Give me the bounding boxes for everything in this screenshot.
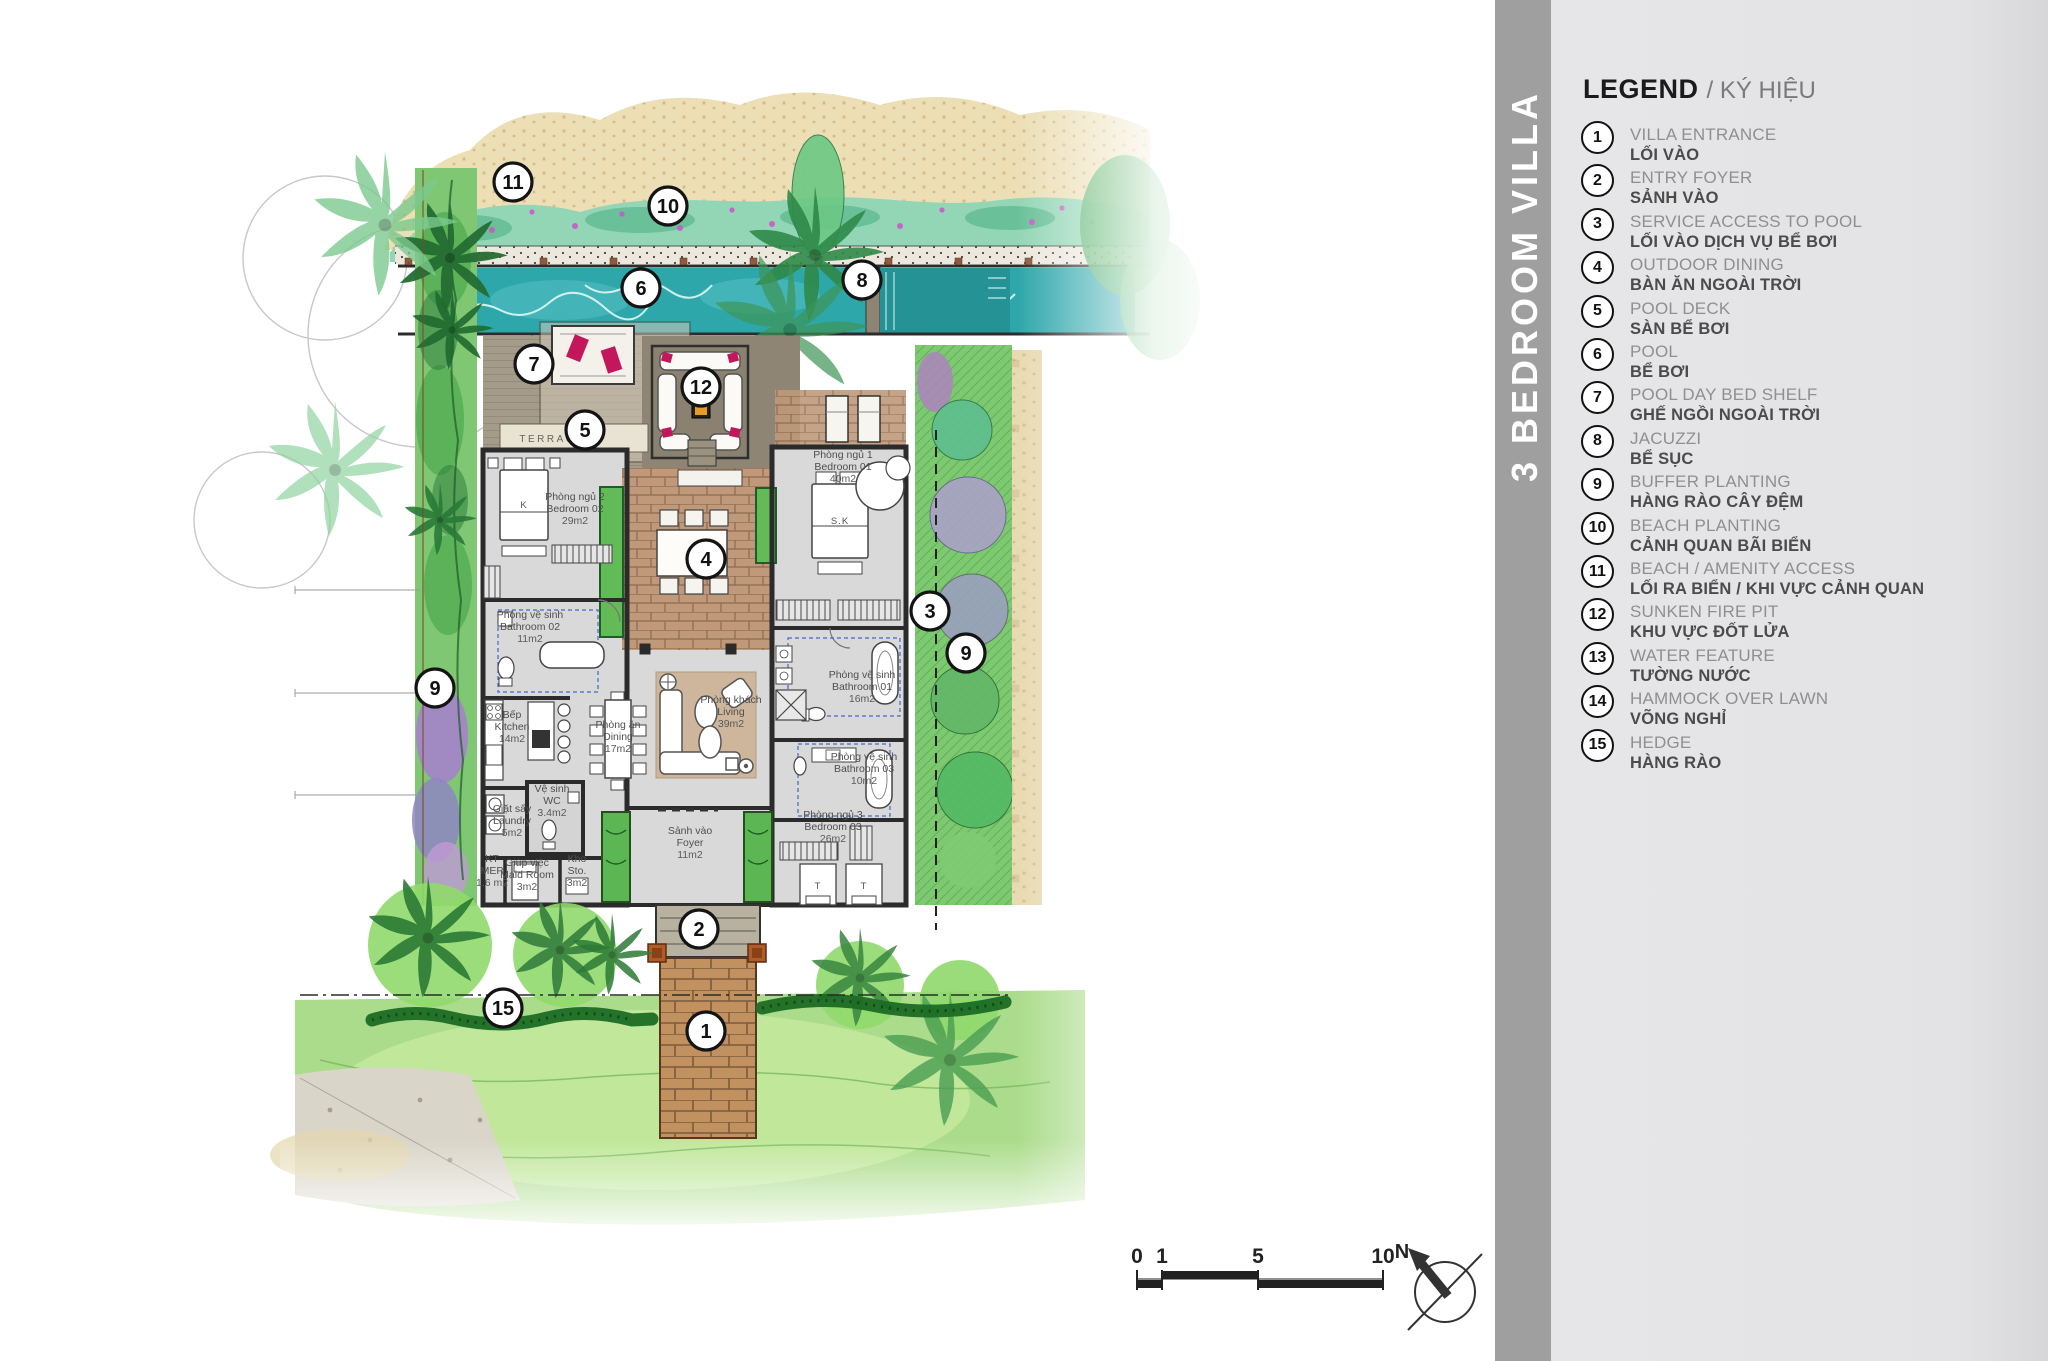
bed-label: T	[861, 881, 868, 892]
legend-item-number: 13	[1581, 642, 1614, 675]
legend-item-vi: VÕNG NGHỈ	[1630, 709, 2020, 730]
plan-marker-9: 9	[416, 669, 454, 707]
legend-item-11: 11BEACH / AMENITY ACCESSLỐI RA BIỂN / KH…	[1581, 558, 2020, 600]
legend-item-number: 5	[1581, 295, 1614, 328]
legend-item-vi: TƯỜNG NƯỚC	[1630, 666, 2020, 687]
svg-text:9: 9	[960, 643, 971, 665]
legend-item-12: 12SUNKEN FIRE PITKHU VỰC ĐỐT LỬA	[1581, 601, 2020, 643]
legend-item-number: 7	[1581, 381, 1614, 414]
legend-items: 1VILLA ENTRANCELỐI VÀO2ENTRY FOYERSẢNH V…	[1551, 0, 2048, 1361]
legend-item-15: 15HEDGEHÀNG RÀO	[1581, 732, 2020, 774]
svg-text:9: 9	[429, 678, 440, 700]
svg-text:3: 3	[924, 601, 935, 623]
plan-marker-10: 10	[649, 187, 687, 225]
plan-marker-2: 2	[680, 910, 718, 948]
legend-item-en: POOL	[1630, 341, 2020, 362]
legend-item-3: 3SERVICE ACCESS TO POOLLỐI VÀO DỊCH VỤ B…	[1581, 211, 2020, 253]
room-label: KhoSto.3m2	[567, 853, 588, 889]
legend-item-13: 13WATER FEATURETƯỜNG NƯỚC	[1581, 645, 2020, 687]
legend-item-en: POOL DAY BED SHELF	[1630, 384, 2020, 405]
legend-item-number: 3	[1581, 208, 1614, 241]
legend-item-vi: KHU VỰC ĐỐT LỬA	[1630, 622, 2020, 643]
legend-item-number: 4	[1581, 251, 1614, 284]
legend-item-en: JACUZZI	[1630, 428, 2020, 449]
svg-text:10: 10	[657, 196, 679, 218]
legend-item-vi: LỐI VÀO	[1630, 145, 2020, 166]
plan-marker-1: 1	[687, 1012, 725, 1050]
plan-marker-11: 11	[494, 163, 532, 201]
svg-text:5: 5	[579, 420, 590, 442]
legend-item-number: 6	[1581, 338, 1614, 371]
legend-item-vi: LỐI RA BIỂN / KHI VỰC CẢNH QUAN	[1630, 579, 2020, 600]
legend-item-vi: BÀN ĂN NGOÀI TRỜI	[1630, 275, 2020, 296]
legend-item-number: 1	[1581, 121, 1614, 154]
plan-marker-5: 5	[566, 411, 604, 449]
legend-item-vi: GHẾ NGỒI NGOÀI TRỜI	[1630, 405, 2020, 426]
legend-item-en: BEACH / AMENITY ACCESS	[1630, 558, 2020, 579]
legend-item-en: BEACH PLANTING	[1630, 515, 2020, 536]
legend-item-2: 2ENTRY FOYERSẢNH VÀO	[1581, 167, 2020, 209]
svg-text:2: 2	[693, 919, 704, 941]
site-plan-drawing: TERRACE	[0, 0, 1495, 1361]
legend-item-en: WATER FEATURE	[1630, 645, 2020, 666]
legend-panel: LEGEND/ KÝ HIỆU 1VILLA ENTRANCELỐI VÀO2E…	[1551, 0, 2048, 1361]
plan-marker-6: 6	[622, 269, 660, 307]
legend-item-en: HAMMOCK OVER LAWN	[1630, 688, 2020, 709]
legend-item-en: ENTRY FOYER	[1630, 167, 2020, 188]
legend-item-number: 12	[1581, 598, 1614, 631]
legend-item-6: 6POOLBỂ BƠI	[1581, 341, 2020, 383]
svg-text:1: 1	[700, 1021, 711, 1043]
legend-item-vi: HÀNG RÀO CÂY ĐỆM	[1630, 492, 2020, 513]
legend-item-number: 2	[1581, 164, 1614, 197]
plan-marker-15: 15	[484, 989, 522, 1027]
legend-item-en: SERVICE ACCESS TO POOL	[1630, 211, 2020, 232]
legend-item-vi: CẢNH QUAN BÃI BIỂN	[1630, 536, 2020, 557]
legend-item-number: 10	[1581, 512, 1614, 545]
svg-text:7: 7	[528, 354, 539, 376]
svg-text:12: 12	[690, 377, 712, 399]
palm-tree	[269, 401, 404, 536]
legend-item-vi: SẢNH VÀO	[1630, 188, 2020, 209]
bed-label: T	[815, 881, 822, 892]
plan-marker-9: 9	[947, 634, 985, 672]
jacuzzi	[880, 268, 1010, 334]
villa-type-banner: 3 BEDROOM VILLA	[1495, 0, 1551, 1361]
right-margin	[1255, 0, 1495, 1361]
scale-label-0: 0	[1131, 1245, 1143, 1268]
drawing-sheet: TERRACE	[0, 0, 2048, 1361]
legend-item-en: SUNKEN FIRE PIT	[1630, 601, 2020, 622]
svg-text:8: 8	[856, 270, 867, 292]
legend-item-7: 7POOL DAY BED SHELFGHẾ NGỒI NGOÀI TRỜI	[1581, 384, 2020, 426]
north-label: N	[1395, 1241, 1409, 1263]
dimension-lines	[295, 586, 420, 799]
legend-item-vi: LỐI VÀO DỊCH VỤ BỂ BƠI	[1630, 232, 2020, 253]
legend-item-10: 10BEACH PLANTINGCẢNH QUAN BÃI BIỂN	[1581, 515, 2020, 557]
legend-item-vi: SÀN BỂ BƠI	[1630, 319, 2020, 340]
legend-item-number: 11	[1581, 555, 1614, 588]
scale-label-1: 1	[1156, 1245, 1168, 1268]
legend-item-number: 8	[1581, 425, 1614, 458]
legend-item-number: 9	[1581, 468, 1614, 501]
legend-item-14: 14HAMMOCK OVER LAWNVÕNG NGHỈ	[1581, 688, 2020, 730]
svg-text:6: 6	[635, 278, 646, 300]
bottom-fade	[280, 1140, 1180, 1280]
plan-marker-4: 4	[687, 540, 725, 578]
legend-item-en: OUTDOOR DINING	[1630, 254, 2020, 275]
pool-day-bed	[552, 326, 634, 384]
legend-item-number: 15	[1581, 729, 1614, 762]
svg-text:15: 15	[492, 998, 514, 1020]
legend-item-vi: HÀNG RÀO	[1630, 753, 2020, 774]
plan-marker-12: 12	[682, 368, 720, 406]
legend-item-en: BUFFER PLANTING	[1630, 471, 2020, 492]
legend-item-vi: BỂ SỤC	[1630, 449, 2020, 470]
scale-label-10: 10	[1371, 1245, 1394, 1268]
legend-item-9: 9BUFFER PLANTINGHÀNG RÀO CÂY ĐỆM	[1581, 471, 2020, 513]
legend-item-number: 14	[1581, 685, 1614, 718]
legend-item-en: POOL DECK	[1630, 298, 2020, 319]
bed-label: K	[520, 500, 527, 511]
legend-item-5: 5POOL DECKSÀN BỂ BƠI	[1581, 298, 2020, 340]
svg-text:11: 11	[502, 172, 523, 194]
legend-item-vi: BỂ BƠI	[1630, 362, 2020, 383]
bedroom01-terrace	[775, 390, 906, 447]
plan-marker-8: 8	[843, 261, 881, 299]
legend-item-1: 1VILLA ENTRANCELỐI VÀO	[1581, 124, 2020, 166]
scale-label-5: 5	[1252, 1245, 1264, 1268]
legend-item-4: 4OUTDOOR DININGBÀN ĂN NGOÀI TRỜI	[1581, 254, 2020, 296]
legend-item-en: VILLA ENTRANCE	[1630, 124, 2020, 145]
bed-label: S.K	[831, 516, 849, 527]
svg-text:4: 4	[700, 549, 712, 571]
plan-marker-7: 7	[515, 345, 553, 383]
banner-title: 3 BEDROOM VILLA	[1504, 90, 1546, 482]
legend-item-en: HEDGE	[1630, 732, 2020, 753]
legend-item-8: 8JACUZZIBỂ SỤC	[1581, 428, 2020, 470]
plan-marker-3: 3	[911, 592, 949, 630]
